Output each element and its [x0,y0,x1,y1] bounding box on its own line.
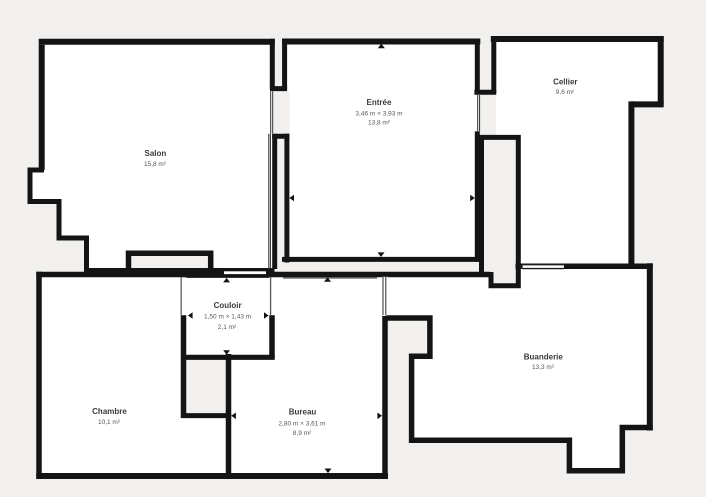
svg-text:13,3 m²: 13,3 m² [532,364,555,371]
svg-text:10,1 m²: 10,1 m² [98,419,121,426]
svg-text:9,6 m²: 9,6 m² [556,89,575,96]
svg-text:15,8 m²: 15,8 m² [144,161,167,168]
svg-text:Entrée: Entrée [367,98,392,107]
svg-text:Salon: Salon [145,149,167,158]
svg-text:13,8 m²: 13,8 m² [368,120,391,127]
svg-text:Bureau: Bureau [289,408,317,417]
svg-text:8,9 m²: 8,9 m² [293,430,312,437]
svg-text:1,50 m × 1,43 m: 1,50 m × 1,43 m [204,314,251,321]
svg-text:Couloir: Couloir [214,301,242,310]
svg-text:Cellier: Cellier [553,78,577,87]
svg-text:2,1 m²: 2,1 m² [218,324,237,331]
svg-text:3,46 m × 3,93 m: 3,46 m × 3,93 m [355,111,402,118]
svg-text:Buanderie: Buanderie [524,353,564,362]
svg-text:Chambre: Chambre [92,407,127,416]
svg-text:2,80 m × 3,61 m: 2,80 m × 3,61 m [278,421,325,428]
